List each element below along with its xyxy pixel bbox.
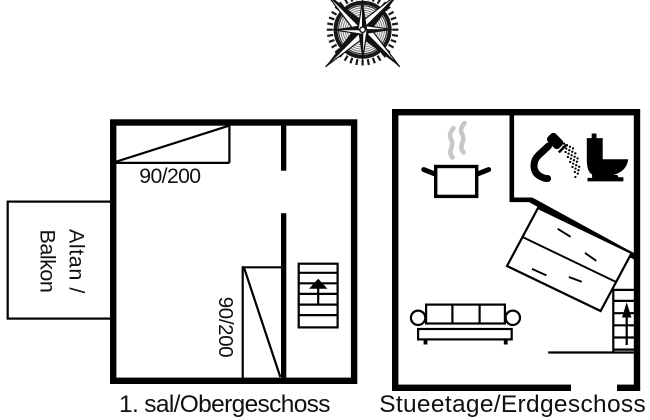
svg-text:Stueetage/Erdgeschoss: Stueetage/Erdgeschoss xyxy=(379,391,646,418)
svg-text:1. sal/Obergeschoss: 1. sal/Obergeschoss xyxy=(119,391,331,418)
svg-text:90/200: 90/200 xyxy=(139,165,201,188)
svg-text:90/200: 90/200 xyxy=(214,297,237,358)
svg-text:Altan /: Altan / xyxy=(65,229,89,293)
svg-text:Balkon: Balkon xyxy=(36,230,60,293)
